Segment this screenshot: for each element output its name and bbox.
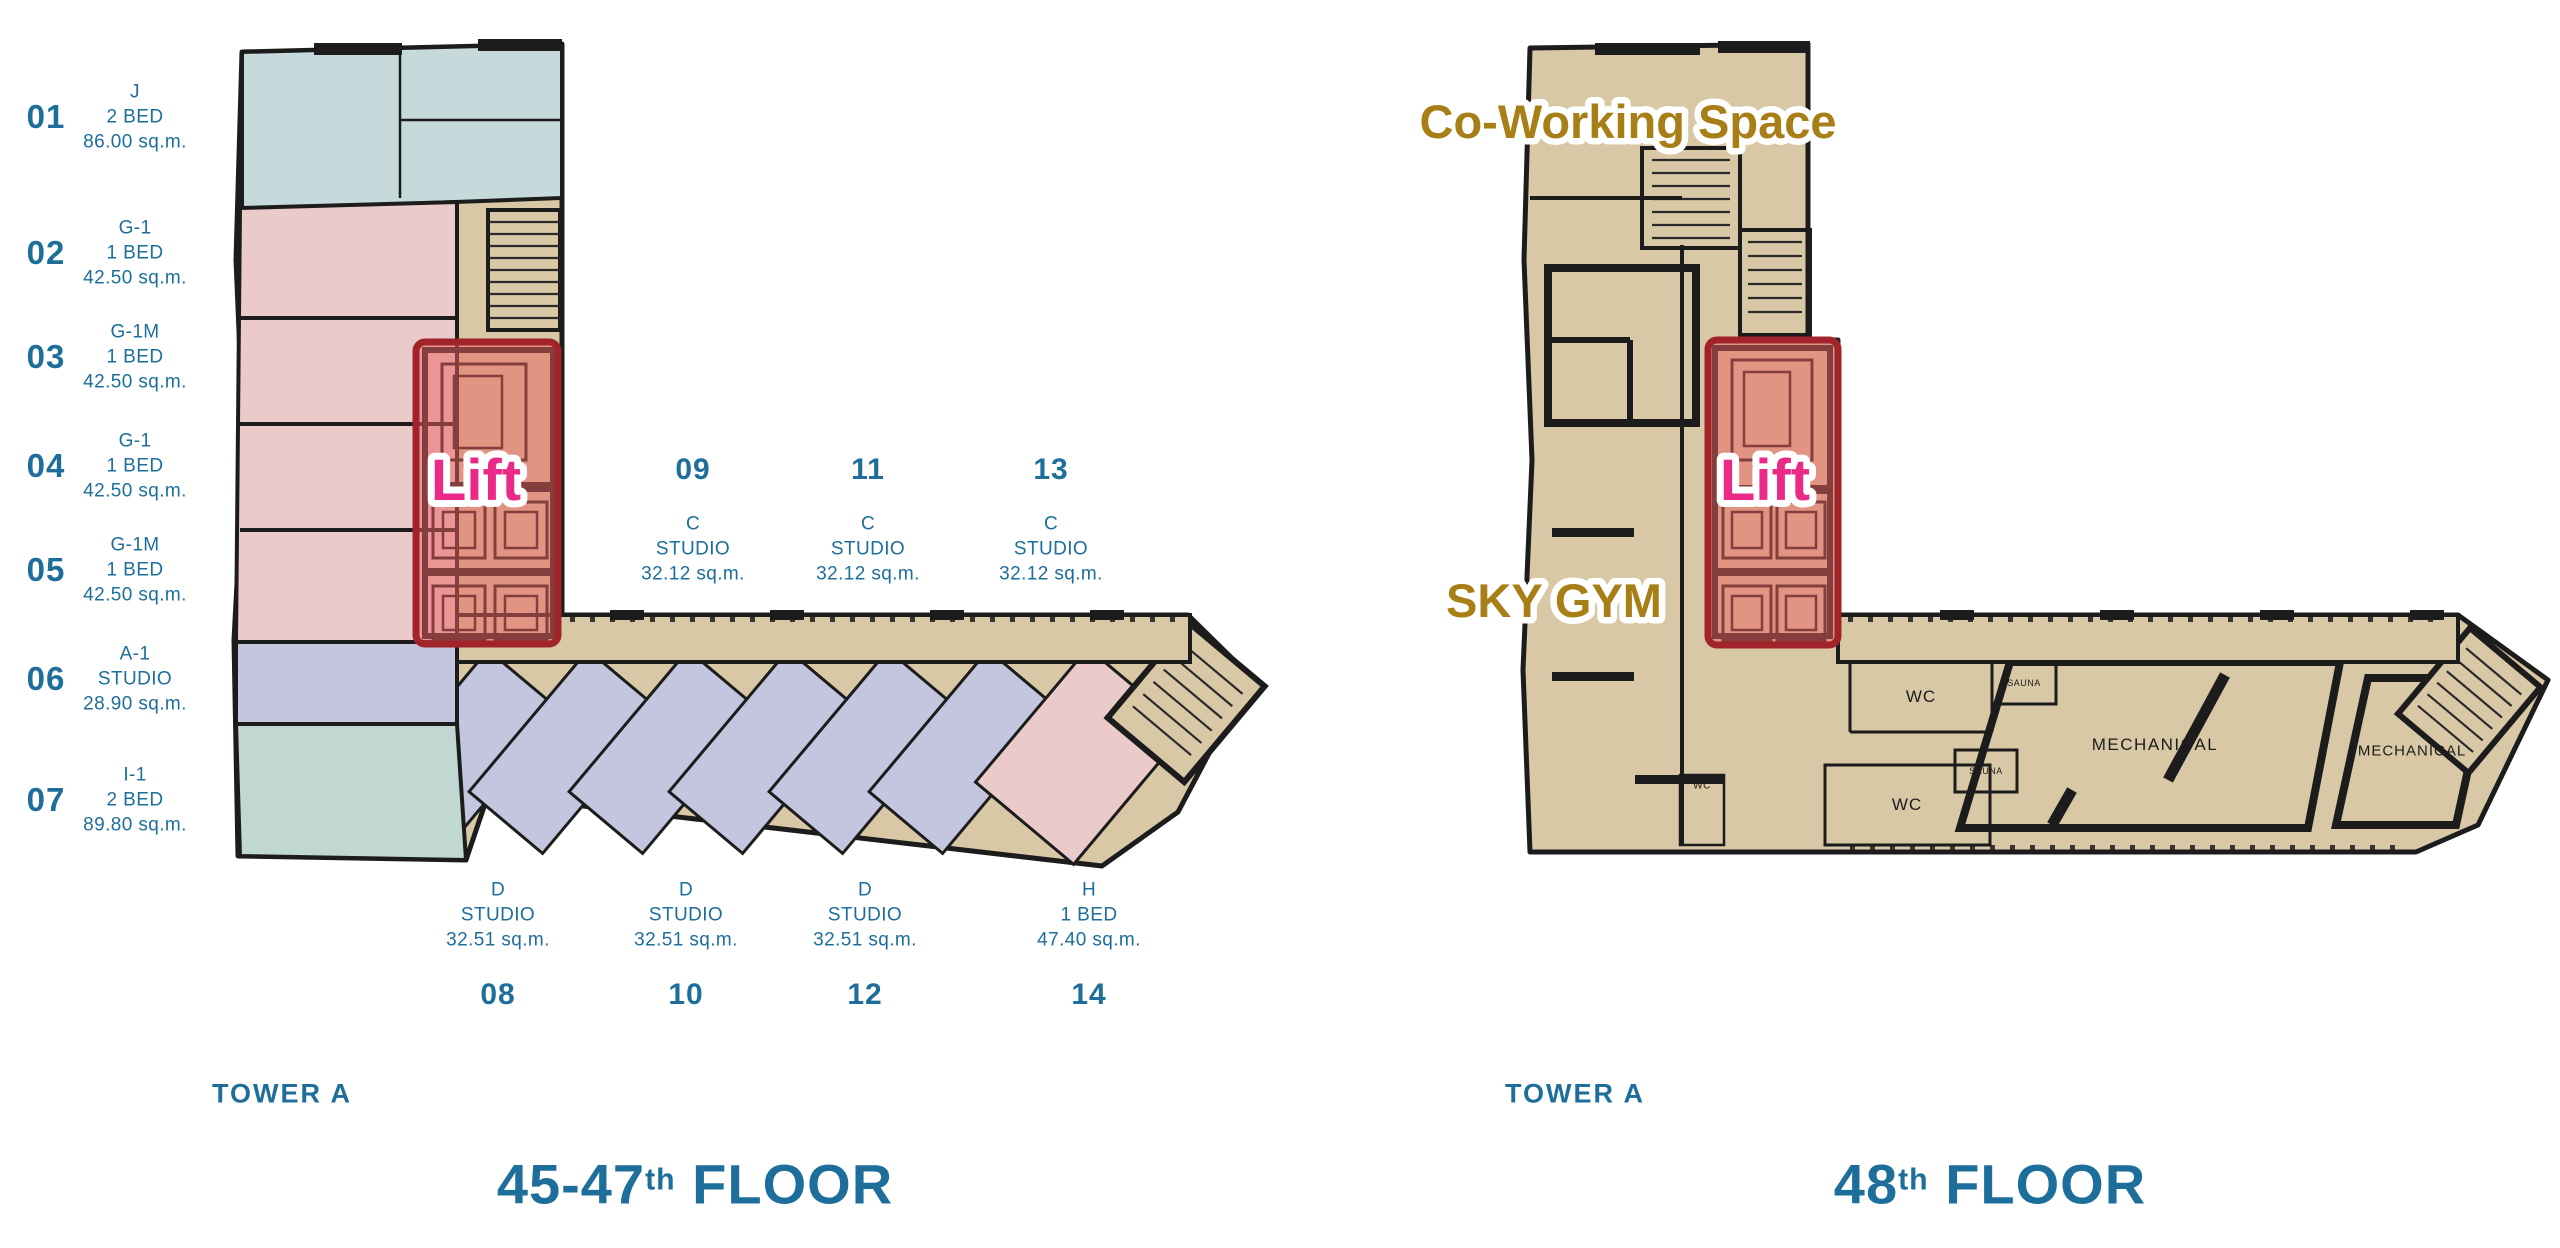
- tower-name-right: TOWER A: [1505, 1079, 1645, 1110]
- wc-label-lower: WC: [1892, 795, 1922, 815]
- floor-suffix: th: [645, 1164, 676, 1197]
- unit-number-09: 09: [675, 453, 710, 487]
- unit-number-08: 08: [480, 978, 515, 1012]
- floor-title-right: 48th FLOOR: [1834, 1152, 2146, 1217]
- unit-info-14: H 1 BED 47.40 sq.m.: [1037, 878, 1141, 953]
- wall-segment: [1595, 43, 1700, 55]
- sauna-label-lower: SAUNA: [1969, 766, 2003, 776]
- unit-number: 04: [27, 447, 66, 485]
- unit-number: 05: [27, 551, 66, 589]
- wc-label-small: WC: [1693, 781, 1711, 792]
- unit-j-shape: [242, 44, 562, 210]
- unit-a1-shape: [236, 642, 457, 724]
- wall-segment: [1718, 41, 1810, 53]
- floor-number: 48: [1834, 1153, 1898, 1216]
- floor-word: FLOOR: [692, 1153, 893, 1216]
- unit-number: 06: [27, 660, 66, 698]
- unit-info: A-1 STUDIO 28.90 sq.m.: [83, 642, 187, 717]
- floor-suffix: th: [1898, 1164, 1929, 1197]
- unit-info: G-1 1 BED 42.50 sq.m.: [83, 216, 187, 291]
- unit-number-14: 14: [1071, 978, 1106, 1012]
- unit-info: I-1 2 BED 89.80 sq.m.: [83, 763, 187, 838]
- unit-number-12: 12: [847, 978, 882, 1012]
- unit-info: G-1 1 BED 42.50 sq.m.: [83, 429, 187, 504]
- building-outline: [1523, 44, 2548, 852]
- floor-word: FLOOR: [1945, 1153, 2146, 1216]
- unit-info-08: D STUDIO 32.51 sq.m.: [446, 878, 550, 953]
- unit-info: G-1M 1 BED 42.50 sq.m.: [83, 533, 187, 608]
- mechanical-label-2: MECHANICAL: [2358, 743, 2466, 760]
- floor-title-left: 45-47th FLOOR: [497, 1152, 893, 1217]
- wall-segment: [478, 39, 562, 51]
- sauna-label-upper: SAUNA: [2007, 678, 2041, 688]
- unit-number: 03: [27, 338, 66, 376]
- unit-number-10: 10: [668, 978, 703, 1012]
- unit-info: G-1M 1 BED 42.50 sq.m.: [83, 320, 187, 395]
- corridor: [457, 610, 1190, 662]
- lift-label: Lift: [1720, 448, 1810, 513]
- coworking-label: Co-Working Space: [1420, 95, 1837, 148]
- unit-number: 02: [27, 234, 66, 272]
- lift-label: Lift: [431, 448, 521, 513]
- floorplan-page: Lift 01 J 2 BED 86.00 sq.m. 02 G-1 1 BED…: [0, 0, 2560, 1248]
- unit-info-13: C STUDIO 32.12 sq.m.: [999, 512, 1103, 587]
- unit-info: J 2 BED 86.00 sq.m.: [83, 80, 187, 155]
- wall-segment: [314, 43, 402, 55]
- unit-i1-shape: [236, 724, 466, 860]
- unit-number: 07: [27, 781, 66, 819]
- unit-info-12: D STUDIO 32.51 sq.m.: [813, 878, 917, 953]
- tower-name-left: TOWER A: [212, 1079, 352, 1110]
- unit-info-11: C STUDIO 32.12 sq.m.: [816, 512, 920, 587]
- unit-info-10: D STUDIO 32.51 sq.m.: [634, 878, 738, 953]
- floor-number: 45-47: [497, 1153, 645, 1216]
- wc-label-upper: WC: [1906, 687, 1936, 707]
- floor-plan-45-47: Lift: [230, 30, 1260, 870]
- mechanical-label-1: MECHANICAL: [2092, 735, 2218, 755]
- sky-gym-label: SKY GYM: [1446, 574, 1662, 627]
- unit-number-13: 13: [1033, 453, 1068, 487]
- unit-number-11: 11: [851, 453, 885, 487]
- unit-number: 01: [27, 98, 66, 136]
- unit-info-09: C STUDIO 32.12 sq.m.: [641, 512, 745, 587]
